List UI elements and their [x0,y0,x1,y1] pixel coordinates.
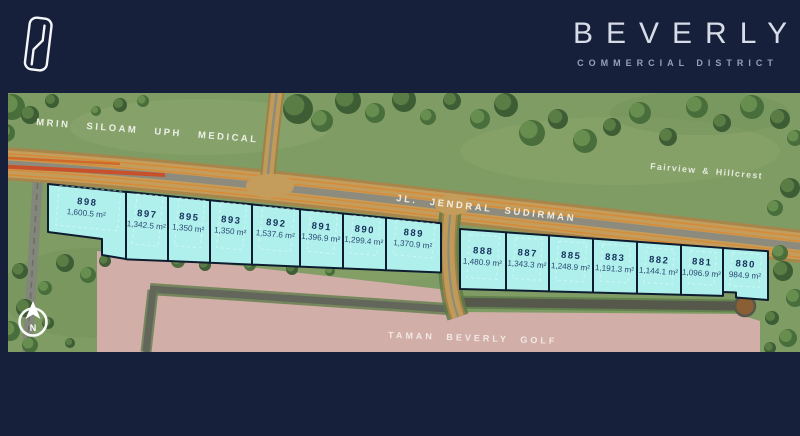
plot-number: 892 [266,217,287,230]
plot-893: 8931,350 m² [210,200,252,264]
plot-885: 8851,248.9 m² [549,235,593,292]
plot-number: 891 [311,221,332,234]
brand-title: BEVERLY [560,17,790,51]
left-border-strip [0,93,8,352]
plot-number: 889 [403,227,424,240]
plot-number: 881 [692,256,713,268]
plot-number: 895 [179,211,200,224]
brand-block: BEVERLY COMMERCIAL DISTRICT [560,17,790,68]
plot-881: 8811,096.9 m² [681,245,723,296]
plot-number: 898 [77,196,98,209]
plot-number: 890 [354,224,375,237]
plot-897: 8971,342.5 m² [126,192,168,261]
beverly-masterplan-screen: BEVERLY COMMERCIAL DISTRICT [0,0,800,436]
plot-880: 880984.9 m² [723,248,768,300]
siteplan-map: 8981,600.5 m²8971,342.5 m²8951,350 m²893… [0,93,800,352]
brand-subtitle: COMMERCIAL DISTRICT [560,58,790,68]
plot-889: 8891,370.9 m² [386,218,441,273]
plot-number: 897 [137,208,158,221]
plot-895: 8951,350 m² [168,196,210,263]
plot-number: 885 [561,250,582,262]
plot-888: 8881,480.9 m² [460,229,506,290]
plot-892: 8921,537.6 m² [252,204,300,266]
plot-887: 8871,343.3 m² [506,232,549,291]
plot-number: 883 [605,252,626,264]
plot-891: 8911,396.9 m² [300,209,343,268]
plot-number: 887 [517,247,538,259]
header-bar: BEVERLY COMMERCIAL DISTRICT [0,0,800,93]
siteplan-svg: 8981,600.5 m²8971,342.5 m²8951,350 m²893… [0,93,800,352]
plot-number: 882 [649,254,670,266]
plot-882: 8821,144.1 m² [637,242,681,295]
compass-n-letter: N [30,323,37,333]
plot-number: 888 [473,245,494,257]
plot-number: 880 [735,258,756,270]
plot-number: 893 [221,214,242,227]
beverly-logo-icon [20,13,56,79]
plot-883: 8831,191.3 m² [593,239,637,294]
footer-bar [0,352,800,436]
plot-890: 8901,299.4 m² [343,214,386,271]
